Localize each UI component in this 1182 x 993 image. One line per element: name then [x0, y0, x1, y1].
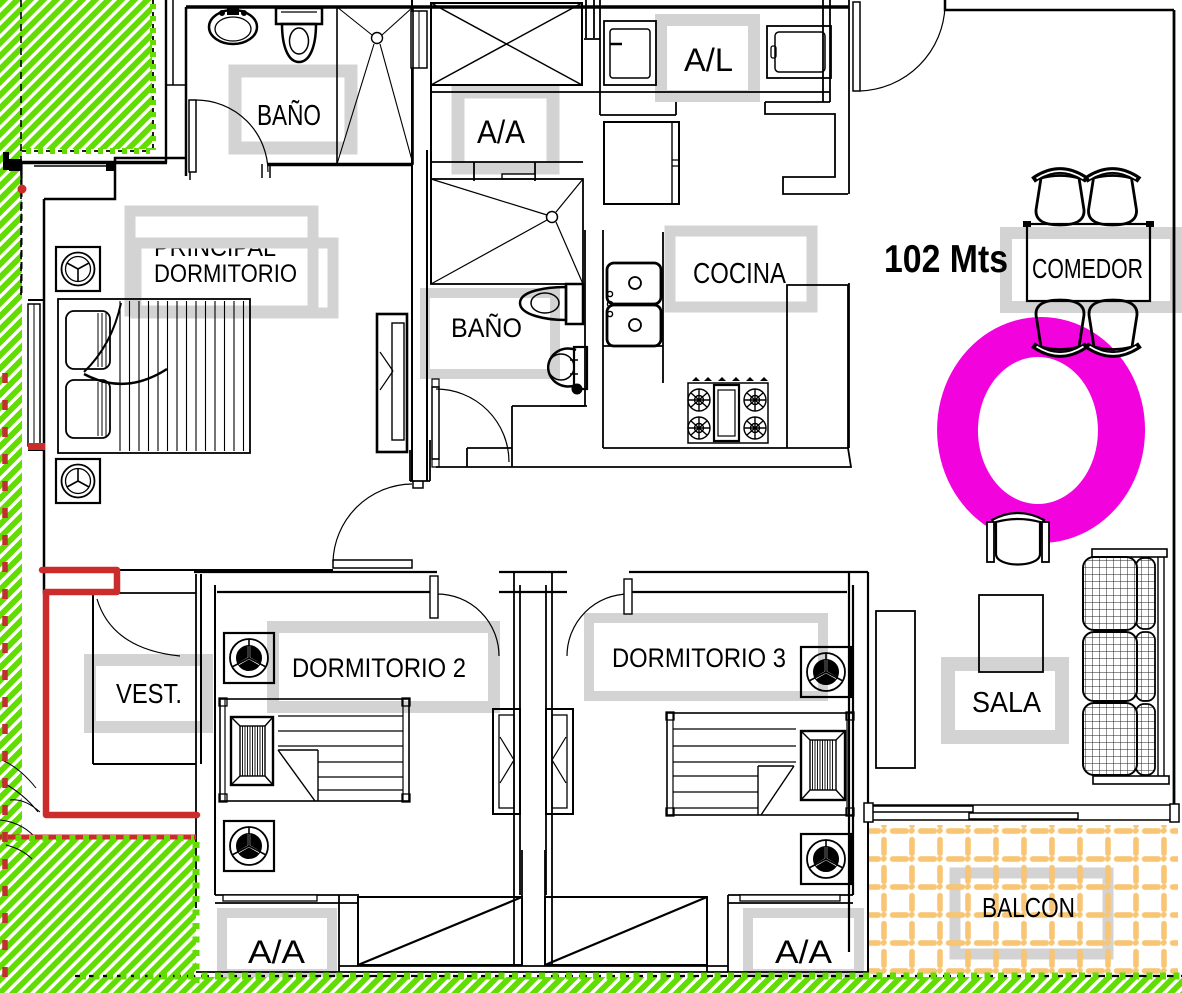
svg-text:A/A: A/A [477, 114, 526, 150]
svg-text:DORMITORIO: DORMITORIO [154, 260, 297, 288]
svg-text:COCINA: COCINA [693, 258, 787, 290]
svg-text:DORMITORIO 3: DORMITORIO 3 [612, 643, 786, 673]
svg-text:DORMITORIO 2: DORMITORIO 2 [292, 653, 466, 683]
svg-text:VEST.: VEST. [116, 678, 182, 709]
svg-text:COMEDOR: COMEDOR [1032, 253, 1143, 284]
svg-text:102 Mts: 102 Mts [884, 238, 1008, 281]
svg-text:BAÑO: BAÑO [451, 312, 522, 343]
svg-text:SALA: SALA [972, 687, 1042, 719]
svg-text:A/A: A/A [775, 934, 833, 970]
svg-text:A/L: A/L [684, 42, 733, 78]
svg-text:BAÑO: BAÑO [257, 98, 321, 132]
svg-text:BALCON: BALCON [982, 892, 1075, 923]
svg-text:A/A: A/A [248, 934, 306, 970]
